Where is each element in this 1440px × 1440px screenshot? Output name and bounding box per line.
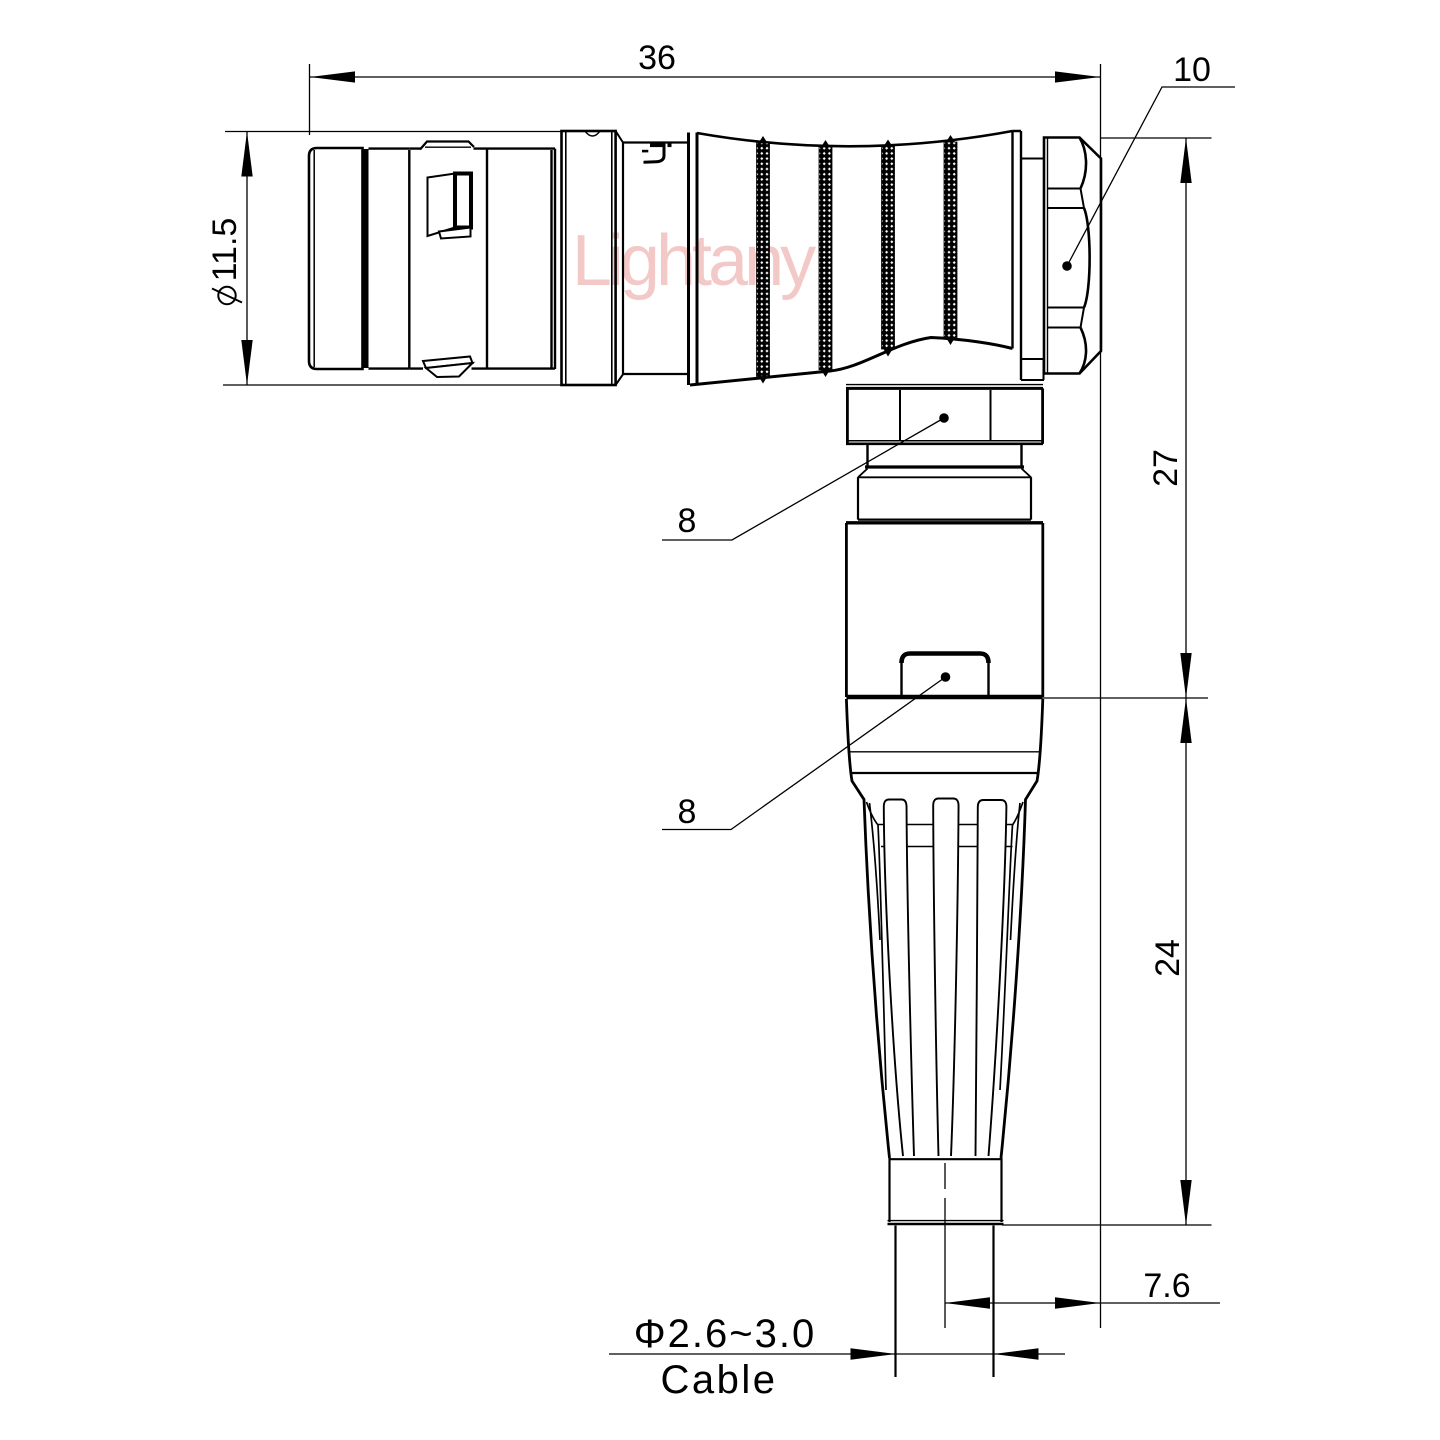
svg-text:Lightany: Lightany bbox=[572, 221, 816, 301]
svg-text:Cable: Cable bbox=[660, 1358, 777, 1402]
svg-text:24: 24 bbox=[1149, 939, 1187, 977]
svg-text:11.5: 11.5 bbox=[206, 218, 244, 282]
svg-text:36: 36 bbox=[638, 39, 676, 77]
svg-text:Φ2.6~3.0: Φ2.6~3.0 bbox=[634, 1312, 816, 1356]
svg-text:8: 8 bbox=[678, 502, 697, 540]
svg-text:27: 27 bbox=[1147, 449, 1185, 487]
svg-text:8: 8 bbox=[678, 793, 697, 831]
svg-text:7.6: 7.6 bbox=[1143, 1267, 1190, 1305]
svg-text:10: 10 bbox=[1173, 51, 1211, 89]
